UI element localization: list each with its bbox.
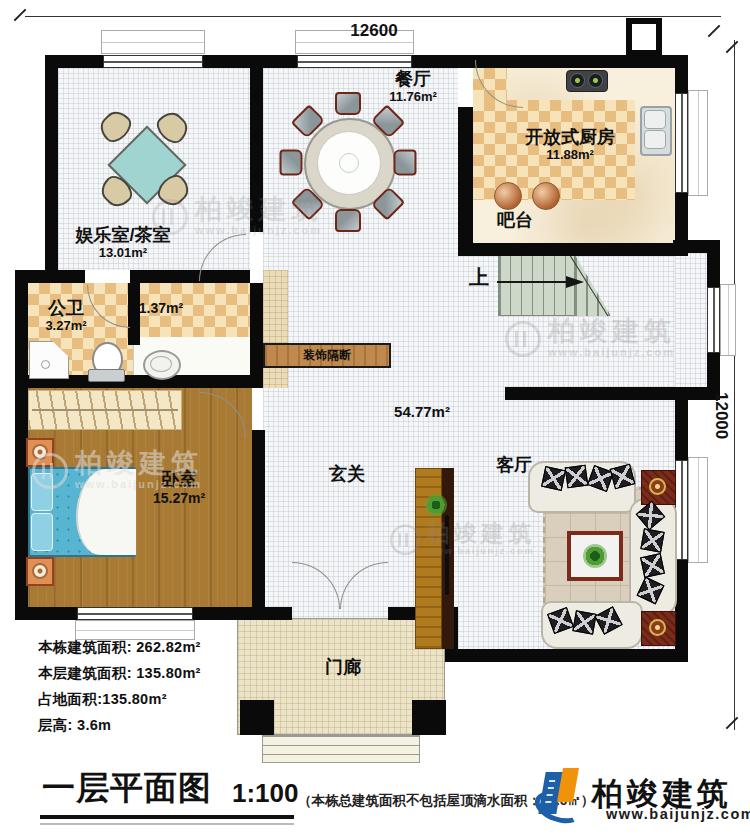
- porch-name: 门廊: [308, 657, 378, 678]
- wall-bath-right: [250, 283, 263, 375]
- brand-website: www.baijunjz.com: [606, 806, 750, 822]
- bedroom-area: 15.27m²: [134, 490, 224, 506]
- plan-scale: 1:100: [232, 778, 299, 809]
- dim-top-tick-right: [708, 25, 721, 38]
- kitchen-sink-basin-top: [644, 110, 666, 129]
- kitchen-name: 开放式厨房: [505, 127, 635, 148]
- window-tea-top: [103, 55, 203, 68]
- kitchen-sink-basin-bottom: [644, 130, 666, 149]
- wall-entry-bottom-a: [265, 607, 292, 620]
- bedroom-name: 卧室: [134, 469, 224, 490]
- wall-bedroom-bottom-a: [15, 607, 77, 620]
- porch-label: 门廊: [308, 657, 378, 678]
- brand-logo: [534, 766, 588, 826]
- bed-pillow-bottom: [31, 513, 53, 551]
- hall-area-value: 54.77m²: [384, 403, 460, 420]
- wall-living-right-a: [675, 400, 688, 460]
- sofa-pillow: [572, 610, 596, 634]
- window-dining-top: [297, 55, 412, 68]
- wall-bay-top: [673, 240, 720, 253]
- title-underline-thick: [40, 815, 294, 819]
- hallway-floor: [263, 270, 288, 388]
- wall-kitchen-right-a: [675, 68, 688, 93]
- sofa-pillow: [565, 465, 589, 489]
- coffee-table-plant: [583, 544, 607, 568]
- foyer-name: 玄关: [314, 464, 380, 485]
- wall-bedroom-right: [252, 430, 265, 607]
- tea-room-label: 娱乐室/茶室 13.01m²: [55, 225, 191, 261]
- wall-bar-bottom: [458, 243, 688, 256]
- bar-label: 吧台: [480, 210, 550, 231]
- stove-burner-right: [588, 73, 603, 88]
- bed-pillow-top: [31, 473, 53, 511]
- wall-bath-top-a: [28, 270, 85, 283]
- bathroom-area: 3.27m²: [34, 319, 98, 334]
- area-stats: 本栋建筑面积: 262.82m² 本层建筑面积: 135.80m² 占地面积:1…: [38, 634, 201, 738]
- dining-chair-s: [335, 209, 361, 232]
- dining-label: 餐厅 11.76m²: [370, 69, 456, 105]
- stair-bay-floor: [675, 253, 707, 387]
- wall-top-b: [203, 55, 297, 68]
- tea-room-area: 13.01m²: [55, 246, 191, 261]
- wall-bay-right-a: [707, 253, 720, 287]
- wall-kitchen-left: [458, 107, 473, 256]
- kitchen-label: 开放式厨房 11.88m²: [505, 127, 635, 163]
- porch-steps: [262, 735, 420, 763]
- chimney: [626, 18, 662, 56]
- dim-right-line: [734, 40, 735, 730]
- dim-right-tick-bottom: [726, 717, 739, 730]
- stove-burner-left: [570, 73, 585, 88]
- wall-bedroom-bottom-b: [193, 607, 265, 620]
- bathroom-label: 公卫 3.27m²: [34, 298, 98, 334]
- wall-top-a: [45, 55, 105, 68]
- tv: [445, 515, 449, 595]
- wall-living-bottom: [445, 649, 688, 662]
- dining-table-center: [339, 153, 359, 173]
- side-table-bottom-medallion: [649, 619, 666, 636]
- dining-chair-e: [394, 150, 417, 176]
- toilet-tank: [88, 369, 125, 382]
- wall-tea-right: [250, 68, 263, 232]
- bar-name: 吧台: [480, 210, 550, 231]
- stairs-direction-line: [497, 281, 569, 283]
- window-frame-bay: [720, 284, 736, 356]
- kitchen-area: 11.88m²: [505, 148, 635, 163]
- bar-stool-left: [494, 182, 522, 210]
- bedroom-label: 卧室 15.27m²: [134, 469, 224, 506]
- sofa-pillow: [640, 528, 664, 552]
- bed-blanket: [76, 469, 136, 555]
- porch-pillar-left: [240, 700, 274, 735]
- dining-area: 11.76m²: [370, 90, 456, 105]
- stairs-steps: [498, 255, 575, 316]
- cabinet-plant: [425, 494, 447, 516]
- sofa-pillow: [640, 553, 665, 578]
- nightstand-top-lamp: [32, 444, 48, 460]
- dim-top-tick-left: [14, 9, 27, 22]
- dining-chair-n: [335, 92, 361, 115]
- wardrobe-rod: [32, 409, 178, 411]
- decor-partition-label: 装饰隔断: [303, 347, 351, 364]
- bathroom2-label: 1.37m²: [130, 300, 192, 316]
- dim-right-label: 12000: [711, 392, 731, 474]
- bathroom-sink-basin: [150, 356, 172, 372]
- dim-top-label: 12600: [338, 21, 410, 41]
- side-table-top-medallion: [649, 478, 666, 495]
- window-frame-tea: [101, 30, 205, 54]
- living-name: 客厅: [481, 455, 547, 476]
- dim-top-line: [25, 16, 721, 17]
- bathroom2-area: 1.37m²: [130, 300, 192, 316]
- window-stair-bay: [707, 287, 720, 353]
- stat-total-area: 本栋建筑面积: 262.82m²: [38, 634, 201, 660]
- nightstand-bottom-lamp: [32, 563, 48, 579]
- dining-chair-w: [280, 150, 303, 176]
- window-kitchen: [675, 93, 688, 193]
- stat-floor-area: 本层建筑面积: 135.80m²: [38, 660, 201, 686]
- title-underline-thin: [40, 823, 294, 825]
- shower-drain: [41, 360, 50, 369]
- dining-name: 餐厅: [370, 69, 456, 90]
- tea-room-name: 娱乐室/茶室: [55, 225, 191, 246]
- wall-bay-bottom: [505, 387, 720, 400]
- window-frame-kitchen: [688, 90, 708, 196]
- bathroom-name: 公卫: [34, 298, 98, 319]
- window-bedroom: [77, 607, 193, 620]
- wall-top-c: [412, 55, 688, 68]
- stairs-direction-arrowhead: [566, 276, 584, 288]
- living-label: 客厅: [481, 455, 547, 476]
- porch-pillar-right: [412, 700, 446, 735]
- stat-footprint: 占地面积:135.80m²: [38, 686, 201, 712]
- plan-title: 一层平面图: [42, 766, 212, 811]
- decor-partition: 装饰隔断: [263, 343, 391, 368]
- bar-stool-right: [532, 182, 560, 210]
- hall-area-label: 54.77m²: [384, 403, 460, 420]
- stat-height: 层高: 3.6m: [38, 712, 201, 738]
- window-frame-living: [688, 457, 708, 563]
- foyer-label: 玄关: [314, 464, 380, 485]
- dim-right-tick-top: [726, 41, 739, 54]
- stairs-up-label: 上: [467, 266, 491, 289]
- floorplan-canvas: 12600 12000: [0, 0, 750, 839]
- wall-kitchen-right-b: [675, 193, 688, 243]
